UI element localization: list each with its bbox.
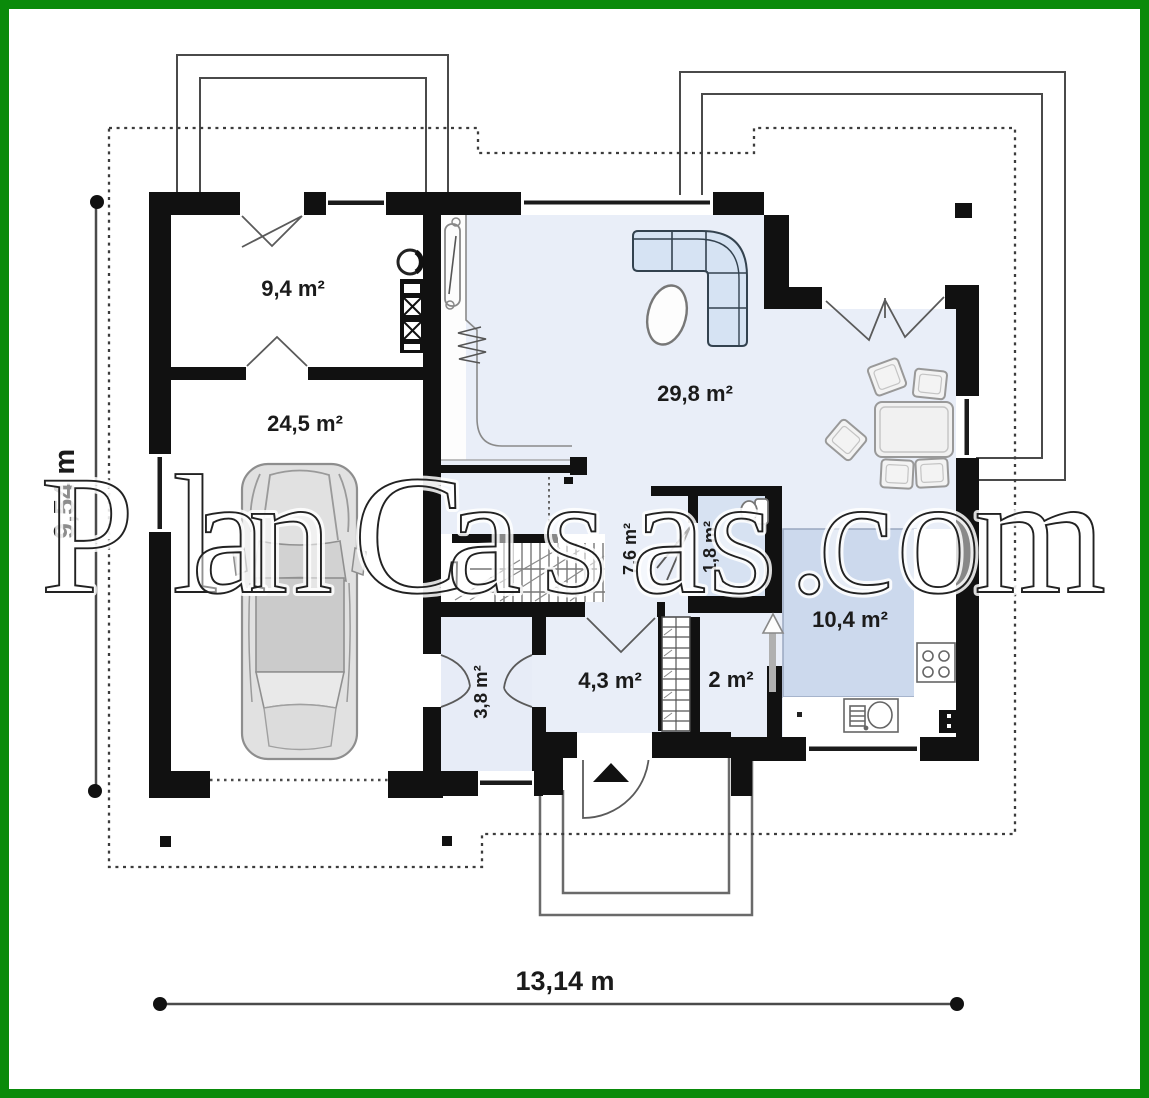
svg-text:2 m²: 2 m² [708,667,753,692]
svg-text:24,5 m²: 24,5 m² [267,411,343,436]
svg-text:9,4 m²: 9,4 m² [261,276,325,301]
svg-text:4,3 m²: 4,3 m² [578,668,642,693]
svg-text:PlanCasas.com: PlanCasas.com [40,441,1106,629]
svg-text:29,8 m²: 29,8 m² [657,381,733,406]
svg-text:3,8 m²: 3,8 m² [470,665,491,718]
svg-text:13,14 m: 13,14 m [515,966,614,996]
